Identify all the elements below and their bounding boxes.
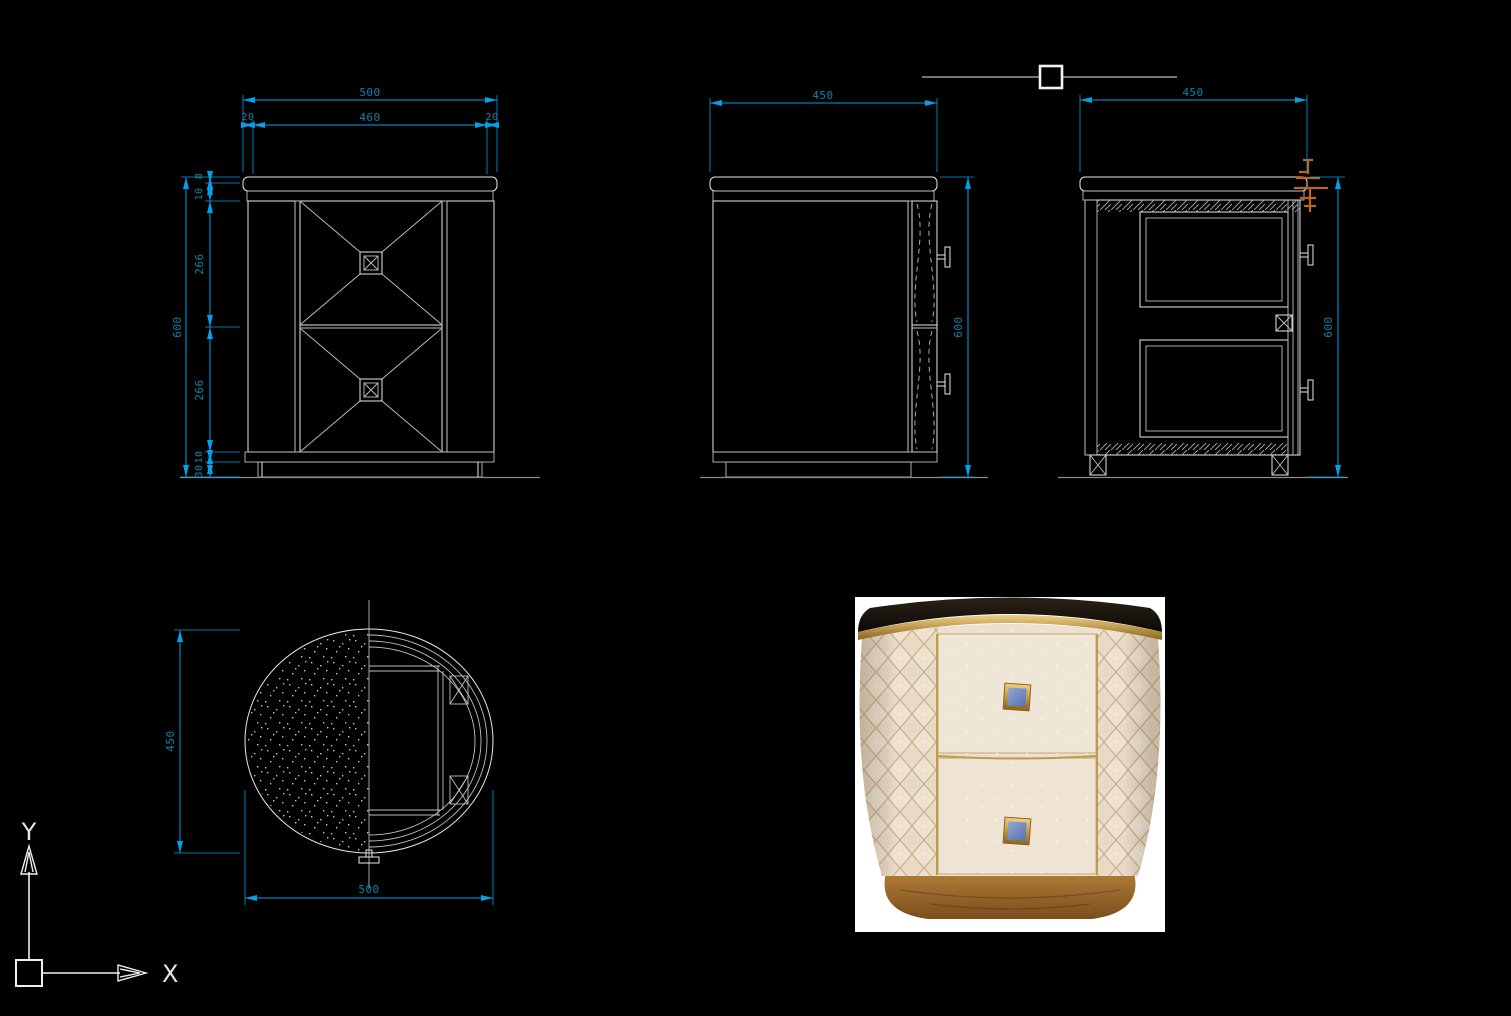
front-left-stile — [295, 201, 300, 452]
front-lower-drawer — [301, 329, 441, 451]
break-square — [1040, 66, 1062, 88]
front-top-slab — [243, 177, 497, 191]
front-right-stile — [442, 201, 447, 452]
front-top-band — [247, 191, 493, 201]
front-elevation-dimensions: 500 20 460 20 8 10 266 266 10 30 600 — [171, 86, 499, 478]
dim-section-height: 600 — [1322, 316, 1335, 337]
plan-view — [245, 600, 493, 888]
dim-front-bottom-rail: 10 — [194, 450, 205, 463]
section-upper-handle — [1300, 245, 1313, 265]
section-elevation-view — [1058, 160, 1348, 478]
front-left-quilt-panel — [248, 201, 295, 452]
dim-front-plinth: 30 — [194, 464, 205, 477]
dim-front-overall-width: 500 — [359, 86, 380, 99]
front-upper-drawer — [301, 202, 441, 324]
section-outline — [1085, 200, 1300, 455]
drawing-canvas: 500 20 460 20 8 10 266 266 10 30 600 — [0, 0, 1511, 1016]
front-drawer-area — [300, 201, 442, 452]
side-top-slab — [710, 177, 937, 191]
dim-side-width: 450 — [812, 89, 833, 102]
dim-side-height: 600 — [952, 316, 965, 337]
side-lower-handle — [937, 374, 950, 394]
side-elevation-view — [700, 177, 988, 478]
ucs-x-label: X — [162, 960, 178, 988]
section-bottom-frame — [1097, 443, 1288, 455]
dim-front-edge-left: 20 — [241, 112, 254, 123]
section-top-band — [1083, 191, 1304, 200]
side-plinth — [726, 462, 911, 477]
front-plinth — [258, 462, 482, 477]
dim-front-top-edge: 8 — [194, 173, 205, 180]
product-photo — [854, 597, 1166, 932]
section-right-foot — [1272, 455, 1288, 475]
section-elevation-dimensions: 450 600 — [1080, 86, 1345, 477]
side-elevation-dimensions: 450 600 — [710, 89, 974, 477]
section-top-frame — [1097, 200, 1300, 212]
dim-front-edge-right: 20 — [485, 112, 498, 123]
dim-section-width: 450 — [1182, 86, 1203, 99]
section-lower-box — [1140, 340, 1288, 437]
front-bottom-rail — [245, 452, 494, 462]
side-top-band — [713, 191, 934, 201]
section-break-marker — [922, 66, 1177, 88]
photo-lower-handle — [1003, 817, 1031, 845]
plan-interior-structure — [369, 666, 468, 815]
plan-stipple-half — [245, 629, 369, 853]
dim-front-lower-drawer: 266 — [193, 379, 206, 400]
dim-plan-depth: 450 — [164, 730, 177, 751]
front-right-quilt-panel — [447, 201, 494, 452]
dim-front-top-panel: 10 — [194, 187, 205, 200]
ucs-icon: Y X — [16, 818, 178, 988]
photo-wood-base — [885, 872, 1136, 919]
dim-plan-width: 500 — [358, 883, 379, 896]
section-left-foot — [1090, 455, 1106, 475]
section-lower-handle — [1300, 380, 1313, 400]
dim-front-overall-height: 600 — [171, 316, 184, 337]
section-lock-block — [1276, 315, 1292, 331]
cad-viewport: 500 20 460 20 8 10 266 266 10 30 600 — [0, 0, 1511, 1016]
ucs-y-arrowhead — [21, 846, 37, 874]
ucs-y-label: Y — [21, 818, 37, 846]
section-side-panel — [1085, 200, 1097, 455]
ucs-origin-square — [16, 960, 42, 986]
side-upper-handle — [937, 247, 950, 267]
dim-front-top-width: 460 — [359, 111, 380, 124]
ucs-x-arrowhead — [118, 965, 146, 981]
photo-upper-handle — [1003, 683, 1031, 711]
section-top-slab — [1080, 177, 1307, 191]
side-bottom-rail — [713, 452, 937, 462]
section-upper-box — [1140, 212, 1288, 307]
side-quilt-panel — [713, 201, 908, 452]
dim-front-upper-drawer: 266 — [193, 253, 206, 274]
